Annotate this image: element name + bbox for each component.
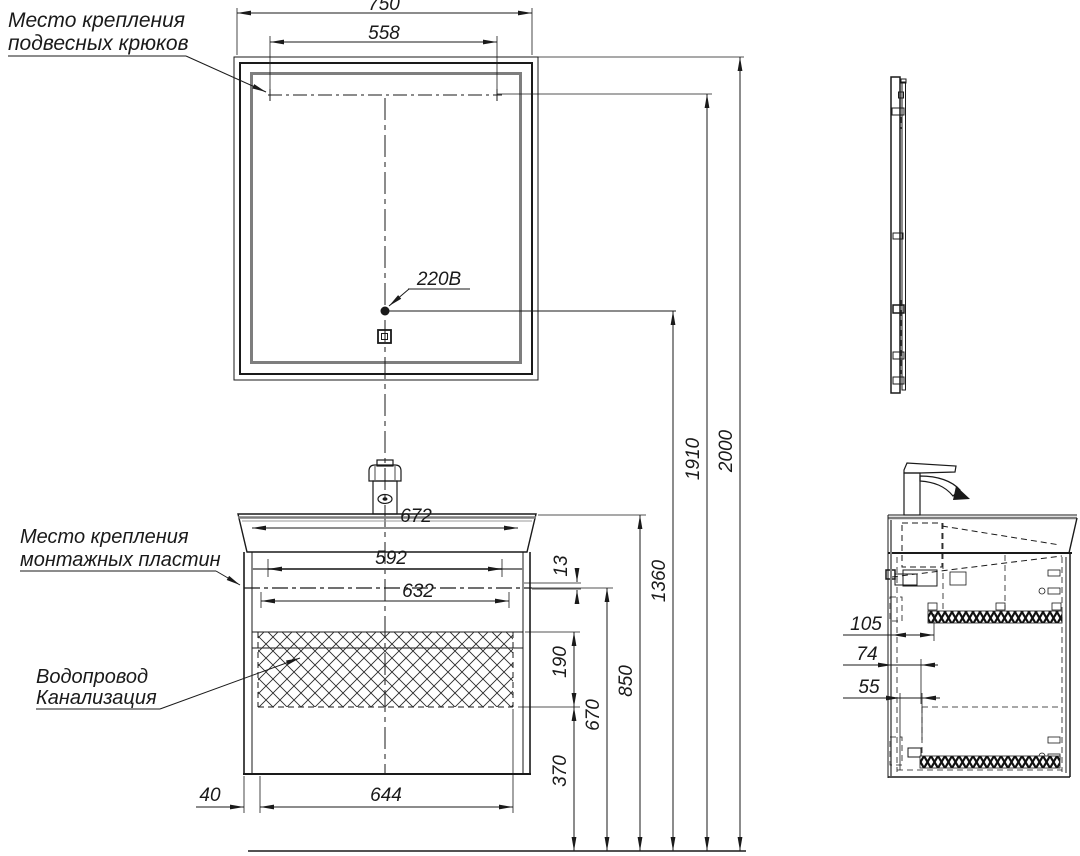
faucet-side bbox=[904, 463, 970, 515]
label-hooks: Место крепления подвесных крюков bbox=[8, 9, 266, 92]
label-mounting-plates: Место крепления монтажных пластин bbox=[20, 526, 240, 585]
dimension-outlet-height: 1360 bbox=[649, 311, 673, 851]
dim-1910: 1910 bbox=[683, 437, 704, 480]
plates-leader-line bbox=[216, 571, 240, 585]
dim-558: 558 bbox=[368, 23, 400, 44]
vanity-side-view: 105 74 55 bbox=[843, 463, 1077, 778]
spout-arrow bbox=[953, 486, 970, 500]
outlet-220v: 220В bbox=[378, 269, 676, 343]
dim-750: 750 bbox=[368, 0, 400, 15]
outlet-label: 220В bbox=[416, 269, 462, 290]
drawer-slide-lower bbox=[920, 756, 1060, 768]
dim-672: 672 bbox=[400, 506, 432, 527]
vanity-front-view: 672 592 632 40 644 bbox=[196, 460, 536, 813]
dim-1360: 1360 bbox=[649, 559, 670, 602]
dim-2000: 2000 bbox=[716, 429, 737, 473]
dim-105: 105 bbox=[850, 614, 882, 635]
dim-850: 850 bbox=[616, 665, 637, 697]
dim-632: 632 bbox=[402, 581, 434, 602]
dimension-hatch-height: 190 bbox=[518, 632, 580, 707]
dimension-mount-line-height: 670 bbox=[532, 588, 613, 851]
mirror-side-view bbox=[891, 77, 906, 393]
plumbing-zone bbox=[258, 632, 513, 707]
dim-644: 644 bbox=[370, 785, 402, 806]
dim-592: 592 bbox=[375, 548, 407, 569]
sink-front bbox=[238, 514, 536, 552]
dim-55: 55 bbox=[858, 677, 880, 698]
dim-13: 13 bbox=[551, 555, 572, 577]
plumbing-label-line2: Канализация bbox=[36, 687, 157, 709]
plates-label-line2: монтажных пластин bbox=[20, 549, 221, 571]
plates-label-line1: Место крепления bbox=[20, 526, 189, 548]
drawer-slide-upper bbox=[928, 611, 1062, 623]
dim-370: 370 bbox=[550, 755, 571, 787]
hooks-label-line1: Место крепления bbox=[8, 9, 185, 32]
installation-drawing: 750 558 Место крепления подвесных крюков… bbox=[0, 0, 1080, 856]
dim-74: 74 bbox=[856, 644, 877, 665]
dim-190: 190 bbox=[550, 646, 571, 678]
dimension-clearance-height: 370 bbox=[550, 707, 574, 851]
plumbing-label-line1: Водопровод bbox=[36, 666, 148, 688]
dimension-total-height: 2000 bbox=[538, 57, 744, 851]
dim-40: 40 bbox=[199, 785, 221, 806]
hooks-label-line2: подвесных крюков bbox=[8, 32, 189, 55]
dimension-plate-gap: 13 bbox=[524, 555, 581, 602]
outlet-leader bbox=[389, 289, 409, 306]
dim-670: 670 bbox=[583, 699, 604, 731]
